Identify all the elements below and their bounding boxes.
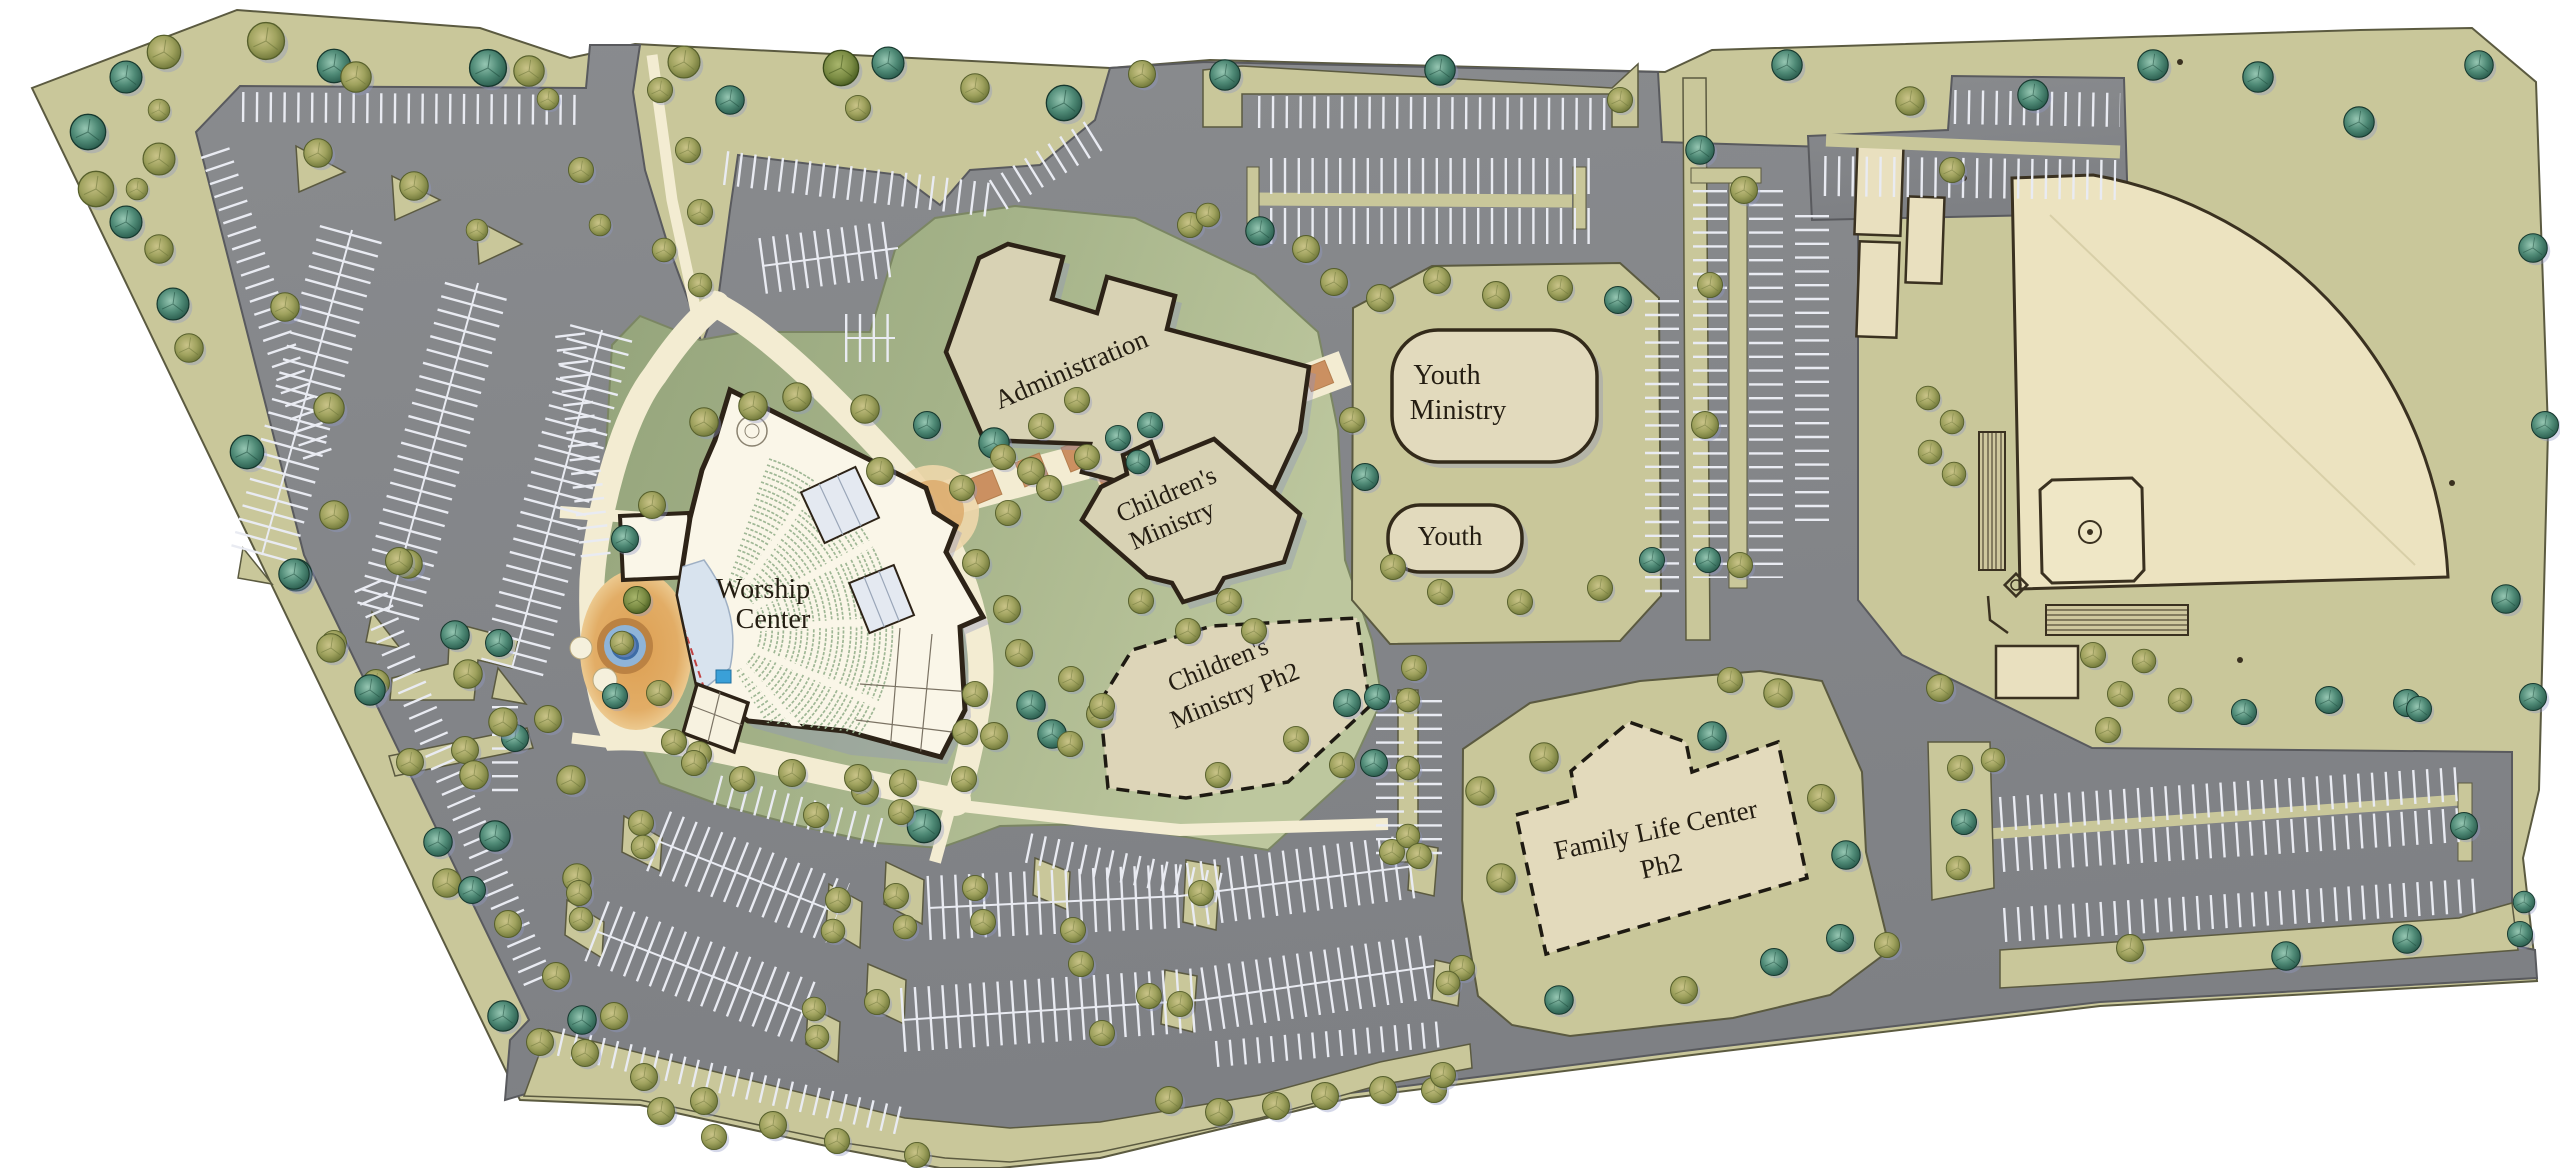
svg-text:Center: Center	[736, 604, 811, 635]
svg-text:Youth: Youth	[1413, 360, 1480, 391]
svg-text:Worship: Worship	[716, 574, 810, 605]
svg-text:Ministry: Ministry	[1410, 395, 1506, 426]
svg-text:Youth: Youth	[1418, 521, 1483, 551]
